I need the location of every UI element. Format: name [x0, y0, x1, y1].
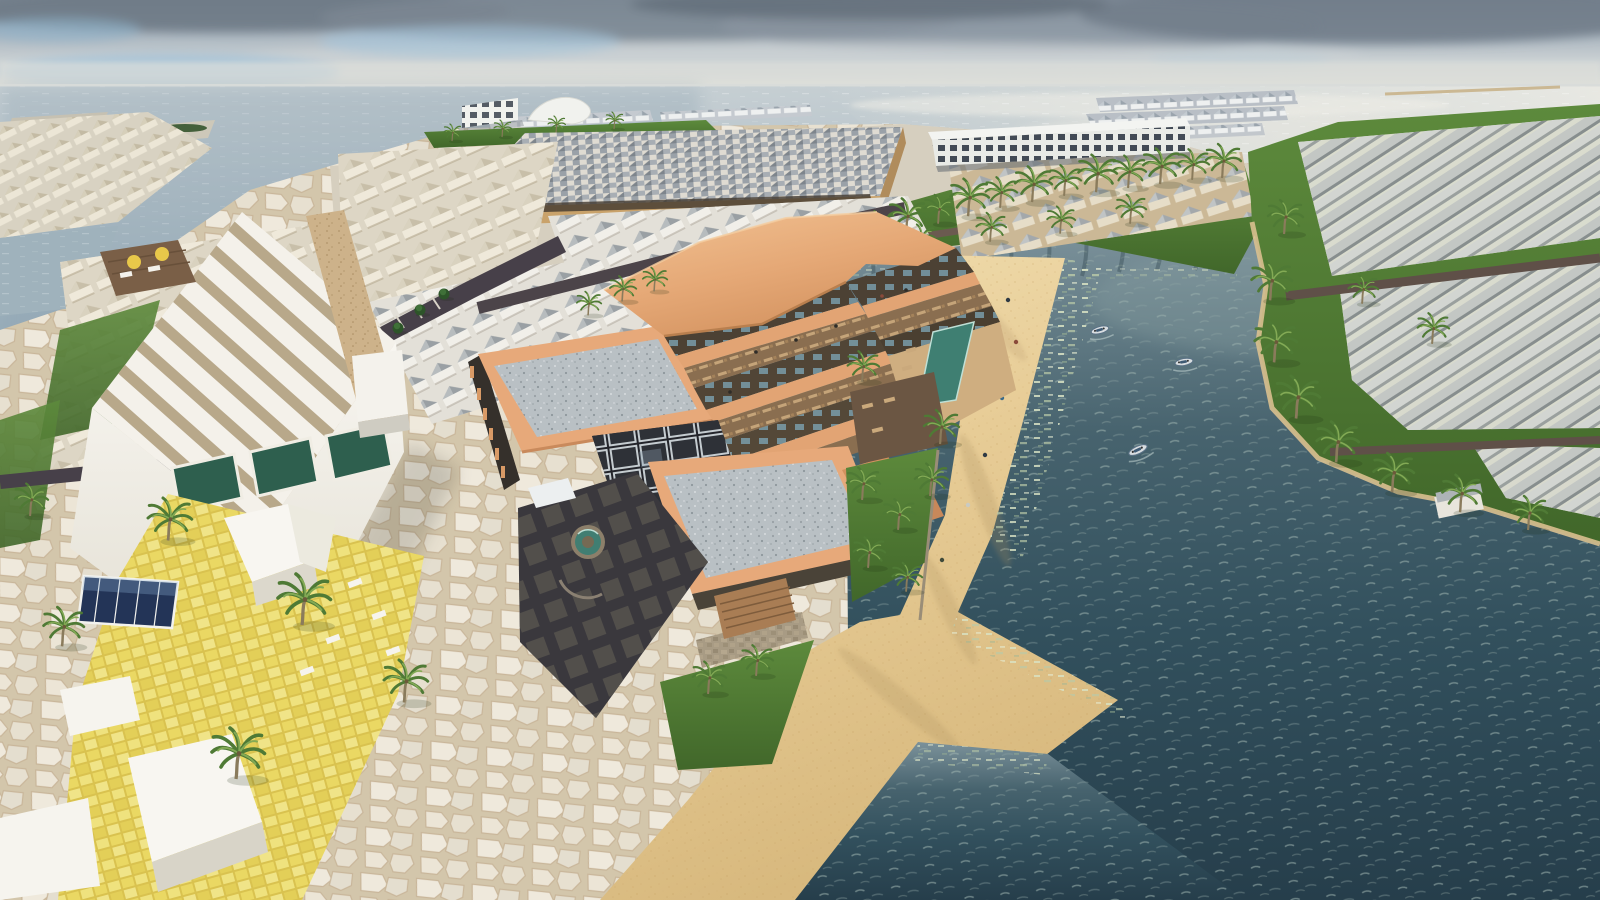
horizon-line	[0, 84, 1600, 87]
yellow-umbrella	[127, 255, 141, 269]
fountain	[571, 525, 605, 559]
glass-skylight	[78, 576, 178, 628]
render-canvas: Aerial rendering of a beachfront resort:…	[0, 0, 1600, 900]
yellow-umbrella	[155, 247, 169, 261]
white-annex	[352, 350, 408, 422]
resort-aerial-render	[0, 0, 1600, 900]
